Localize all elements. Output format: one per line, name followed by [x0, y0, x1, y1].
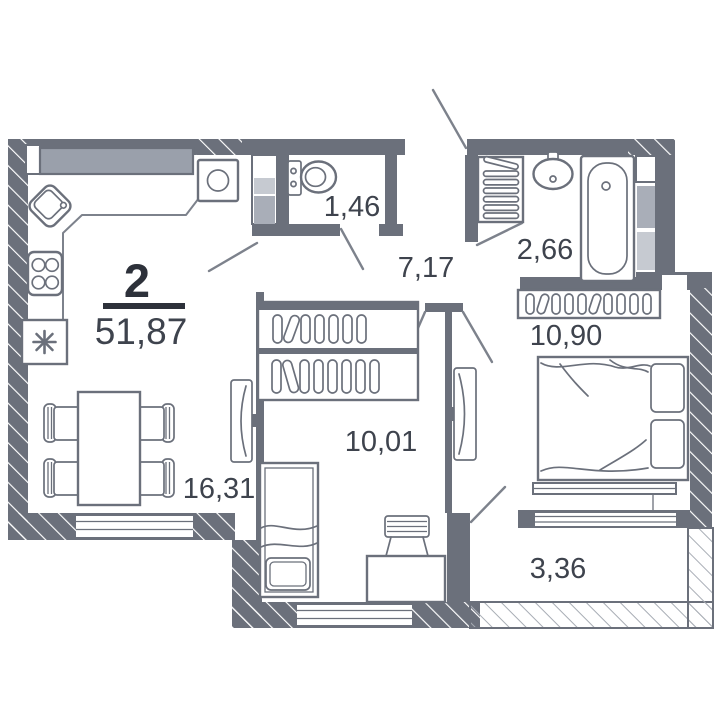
area-balcony: 3,36 [530, 553, 586, 585]
balcony-wall-bottom [470, 602, 713, 628]
bath-shaft-white [636, 156, 656, 182]
kitchen-wall-niche [26, 145, 40, 174]
total-area-label: 51,87 [95, 311, 188, 352]
living-door-swing [209, 243, 257, 271]
window-room-second [297, 602, 412, 628]
toilet-icon [288, 161, 336, 195]
hatch-right-bedroom [690, 288, 712, 528]
kitchen-sink-icon [27, 183, 74, 230]
bedroom-furniture [448, 290, 688, 480]
wall-bathroom-left [465, 155, 478, 242]
single-bed-icon [260, 463, 318, 597]
area-bedroom: 10,90 [530, 320, 603, 352]
right-wall-niche [662, 275, 687, 290]
stove-icon [28, 252, 62, 295]
area-hallway: 7,17 [398, 252, 454, 284]
floor-plan-canvas: 2 51,87 1,46 7,17 2,66 10,90 10,01 16,31… [0, 0, 720, 720]
wardrobe-icon [258, 302, 418, 400]
washing-machine-icon [198, 160, 238, 201]
balcony-wall-right [688, 528, 713, 628]
title-underline [103, 303, 185, 309]
chair-icon [44, 459, 80, 497]
chair-icon [138, 459, 174, 497]
area-living: 16,31 [183, 473, 256, 505]
wall-corridor-t-bar [425, 303, 463, 312]
wash-basin-icon [534, 152, 573, 189]
desk-icon [367, 556, 445, 602]
hatch-bottom-room-1 [232, 602, 297, 628]
dining-table-icon [78, 392, 140, 505]
living-furniture [44, 392, 174, 505]
balcony-door-swing [471, 487, 505, 522]
wall-balcony-pier-right [676, 510, 690, 528]
duct-shaft-light [254, 178, 275, 194]
double-bed-icon [538, 357, 688, 480]
living-tv-icon [231, 380, 257, 462]
toilet-door-swing [341, 229, 363, 269]
duct-shaft-mid [254, 196, 275, 224]
chair-icon [44, 404, 80, 442]
hatch-top-2 [628, 139, 675, 155]
entrance-door-swing [433, 90, 466, 148]
bedroom-tv-icon [448, 368, 476, 460]
area-bathroom: 2,66 [517, 234, 573, 266]
wall-balcony-pier [518, 510, 535, 528]
hatch-bottom-living-1 [8, 513, 76, 540]
bedroom-window-radiator [533, 483, 676, 494]
bathtub-icon [581, 156, 634, 281]
bathroom-door-swing [477, 223, 522, 245]
wall-toilet-right [385, 155, 397, 228]
bath-shaft-mid [637, 186, 655, 228]
wall-toilet-bottom [252, 224, 340, 236]
desk-chair-icon [385, 516, 429, 556]
balcony-walls [470, 528, 713, 628]
area-room-second: 10,01 [345, 426, 418, 458]
window-living [76, 513, 193, 540]
kitchen-counter [40, 148, 193, 174]
bedroom-wardrobe-icon [518, 290, 660, 318]
hatch-bottom-living-2 [193, 513, 235, 540]
towel-radiator-icon [478, 156, 523, 222]
fridge-icon [22, 320, 67, 364]
hatch-top-1 [196, 139, 242, 155]
bedroom-door-swing [463, 312, 492, 362]
wall-right-bathroom [655, 139, 675, 274]
wall-toilet-foot [379, 224, 403, 236]
area-toilet: 1,46 [324, 191, 380, 223]
bath-shaft-light [637, 232, 655, 270]
chair-icon [138, 404, 174, 442]
room-count-label: 2 [124, 254, 150, 307]
floor-plan: 2 51,87 1,46 7,17 2,66 10,90 10,01 16,31… [0, 0, 720, 720]
